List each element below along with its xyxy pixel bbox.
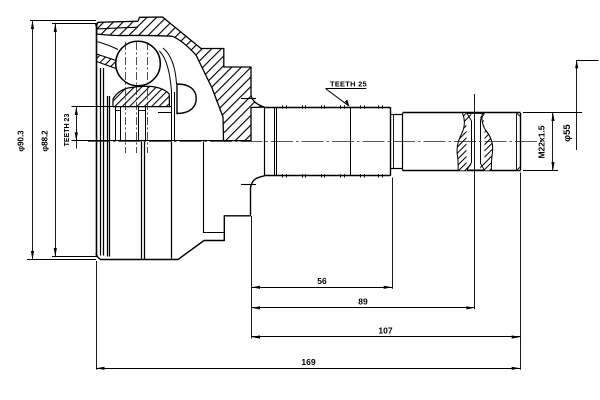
svg-text:TEETH 23: TEETH 23 xyxy=(64,114,71,147)
svg-text:56: 56 xyxy=(317,276,327,286)
svg-text:M22x1.5: M22x1.5 xyxy=(537,125,547,158)
svg-text:φ90.3: φ90.3 xyxy=(17,130,26,152)
svg-text:89: 89 xyxy=(358,297,368,307)
svg-text:φ55: φ55 xyxy=(562,124,573,142)
svg-text:107: 107 xyxy=(378,326,392,336)
svg-text:169: 169 xyxy=(301,357,315,367)
svg-text:φ88.2: φ88.2 xyxy=(41,130,50,152)
svg-text:TEETH 25: TEETH 25 xyxy=(330,80,367,89)
